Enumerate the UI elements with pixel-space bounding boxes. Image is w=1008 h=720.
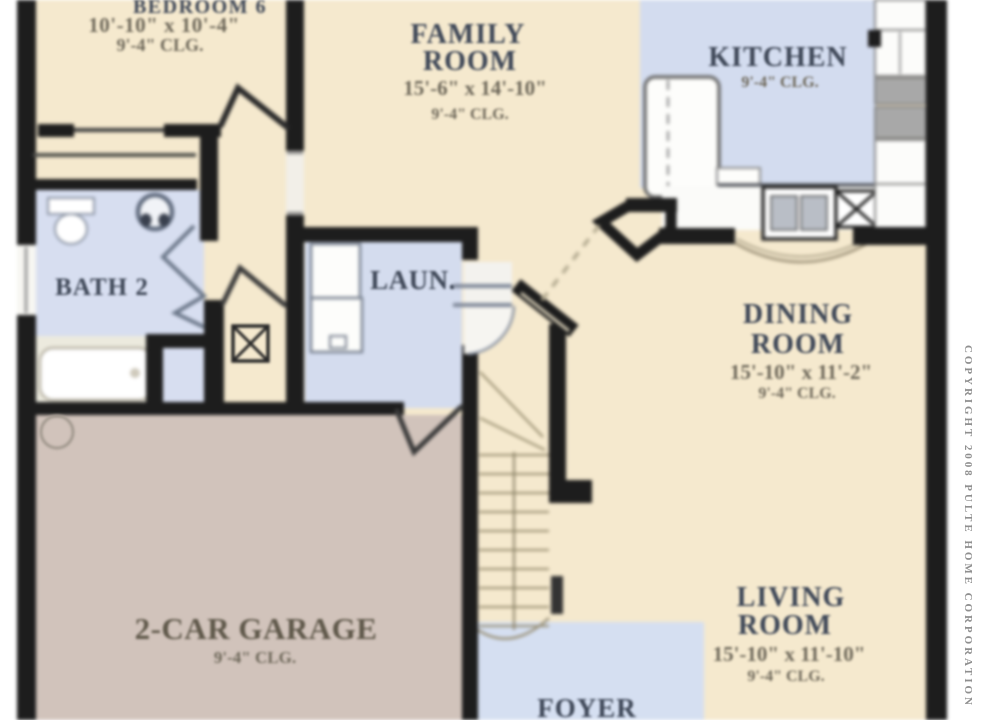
- svg-text:2-CAR GARAGE: 2-CAR GARAGE: [135, 611, 378, 646]
- svg-text:COPYRIGHT 2008 PULTE HOME CORP: COPYRIGHT 2008 PULTE HOME CORPORATION: [962, 345, 974, 705]
- svg-text:9'-4" CLG.: 9'-4" CLG.: [214, 648, 296, 667]
- svg-text:9'-4" CLG.: 9'-4" CLG.: [747, 668, 824, 685]
- svg-text:15'-10" x 11'-2": 15'-10" x 11'-2": [730, 360, 872, 384]
- svg-text:9'-4" CLG.: 9'-4" CLG.: [741, 74, 818, 91]
- svg-text:9'-4" CLG.: 9'-4" CLG.: [117, 35, 204, 55]
- svg-text:LIVING: LIVING: [737, 582, 846, 613]
- svg-text:15'-10" x 11'-10": 15'-10" x 11'-10": [713, 642, 866, 666]
- svg-text:DINING: DINING: [743, 299, 853, 330]
- svg-text:LAUN.: LAUN.: [370, 265, 456, 295]
- svg-text:FOYER: FOYER: [537, 693, 637, 720]
- svg-text:BATH 2: BATH 2: [55, 274, 149, 301]
- svg-text:ROOM: ROOM: [751, 329, 845, 360]
- svg-text:10'-10" x 10'-4": 10'-10" x 10'-4": [88, 13, 239, 37]
- svg-text:KITCHEN: KITCHEN: [708, 42, 847, 73]
- svg-text:ROOM: ROOM: [738, 610, 832, 641]
- svg-text:ROOM: ROOM: [423, 46, 517, 77]
- svg-text:9'-4" CLG.: 9'-4" CLG.: [758, 385, 835, 402]
- svg-text:9'-4" CLG.: 9'-4" CLG.: [431, 106, 508, 123]
- svg-text:15'-6" x 14'-10": 15'-6" x 14'-10": [403, 76, 546, 100]
